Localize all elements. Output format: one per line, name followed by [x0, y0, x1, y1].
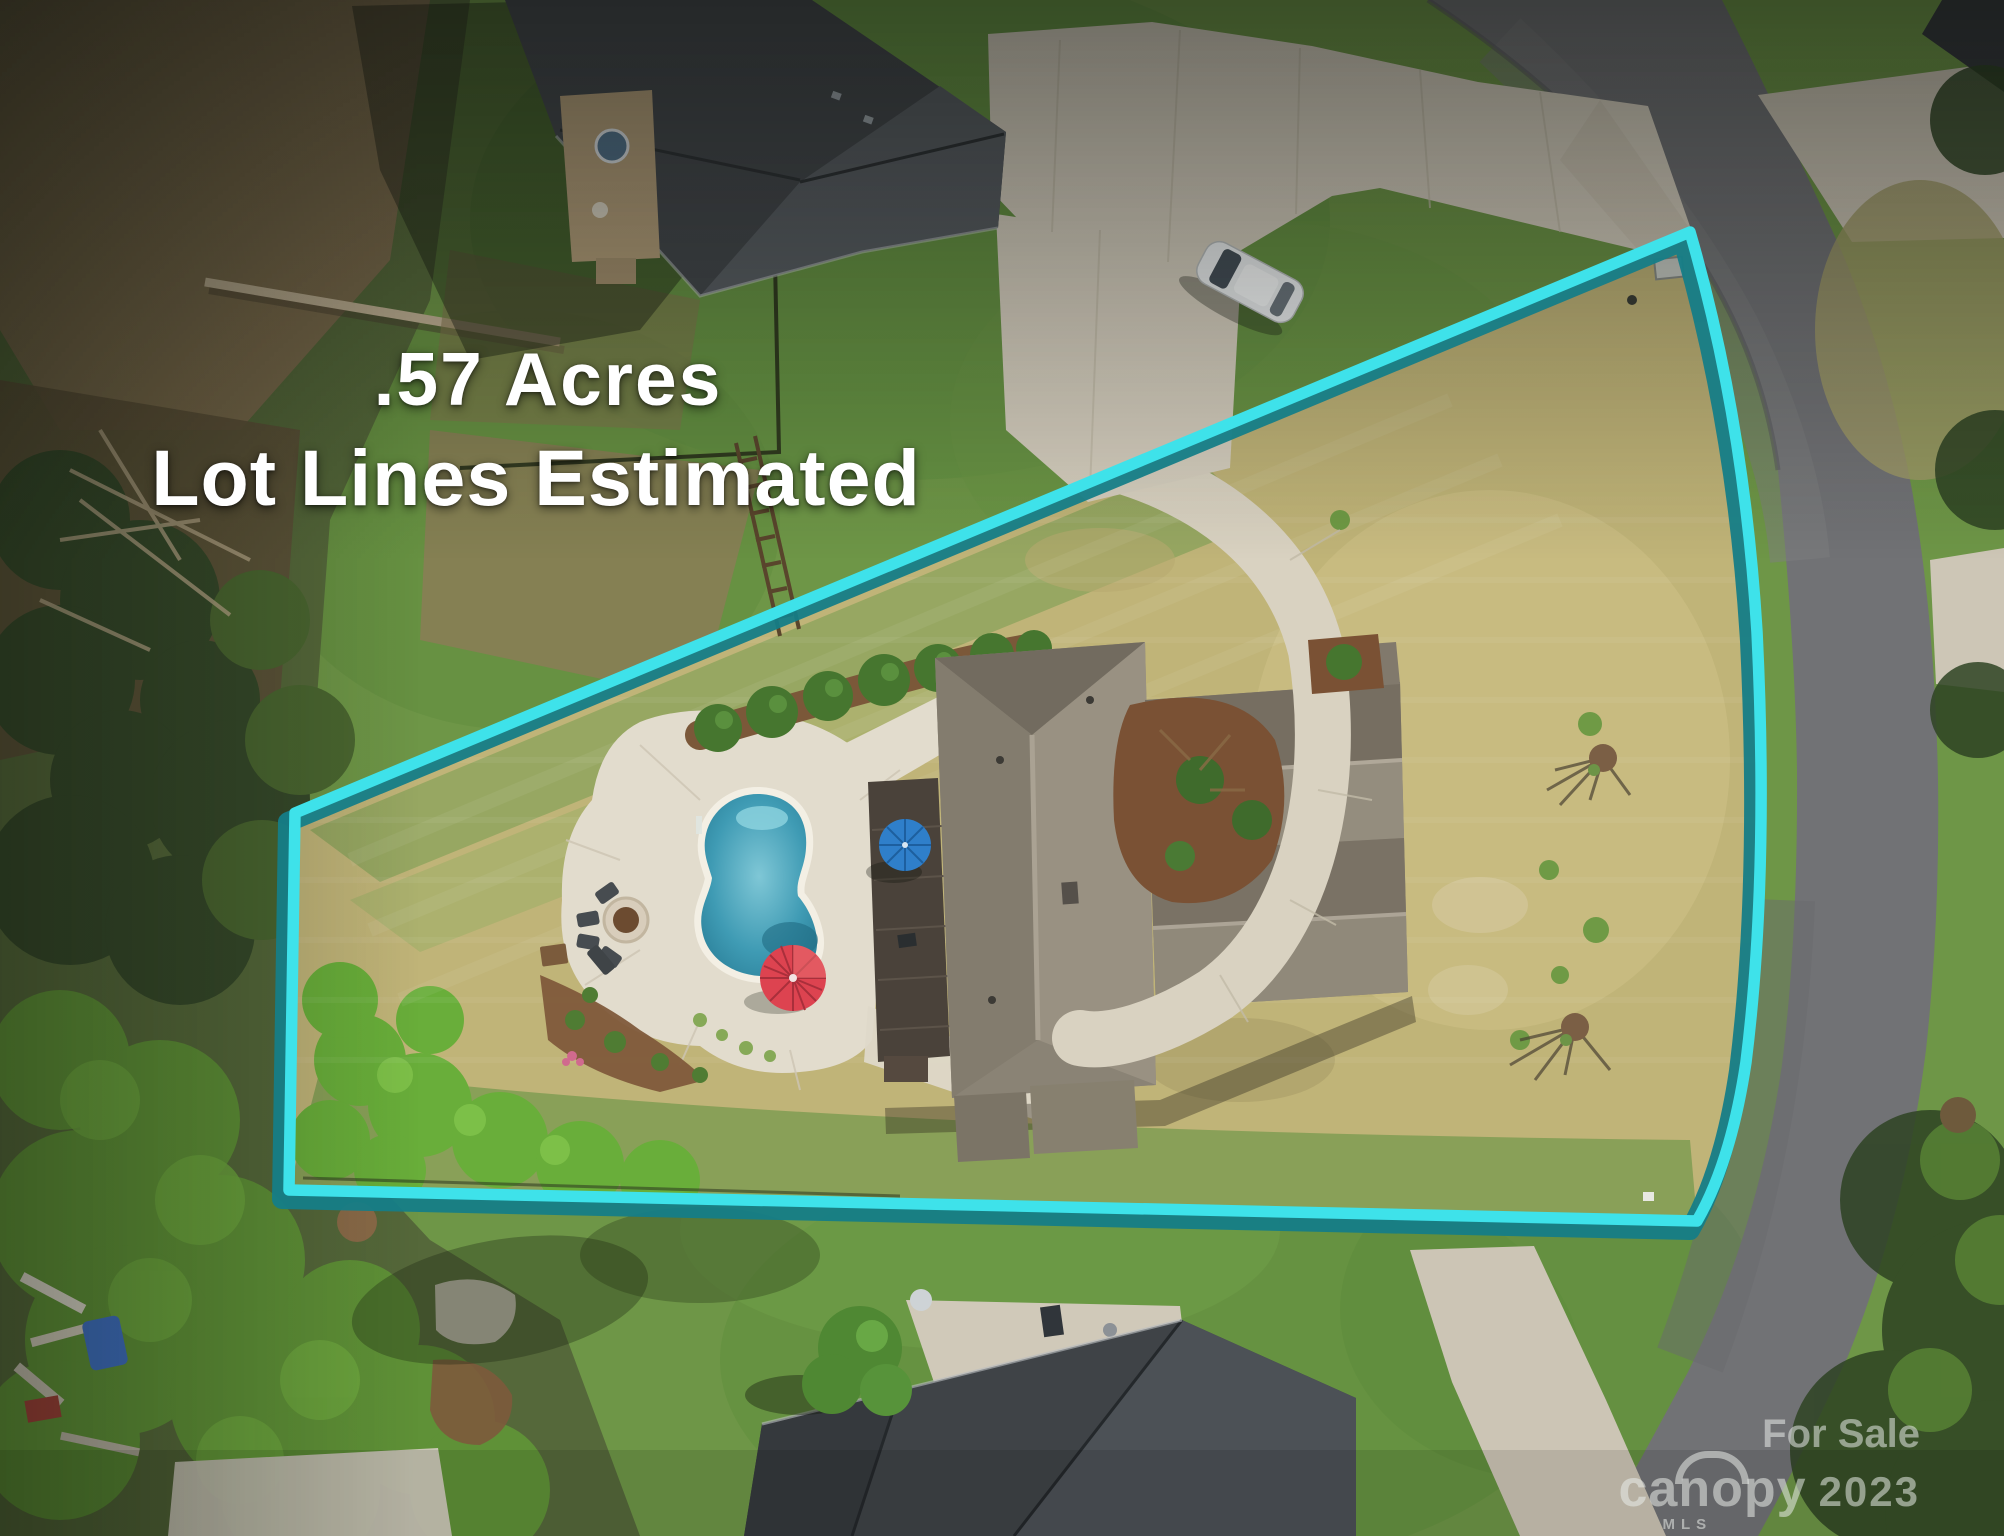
corner-bed — [1308, 634, 1384, 694]
yard-marker — [1643, 1192, 1654, 1201]
left-shade-overlay — [0, 0, 420, 1536]
satellite-dish — [910, 1289, 932, 1311]
deck-stairs — [884, 1056, 928, 1082]
canopy-mls-logo: canopy MLS 2023 — [1619, 1463, 1921, 1515]
wood-box — [540, 943, 569, 966]
mulch-island — [1113, 698, 1284, 903]
canopy-logo-arch-icon — [1675, 1451, 1749, 1484]
pool-ladder — [696, 816, 702, 834]
watermark: For Sale canopy MLS 2023 — [1619, 1414, 1921, 1515]
chimney — [1061, 881, 1078, 904]
lot-lines-disclaimer-label: Lot Lines Estimated — [151, 438, 921, 517]
pool-steps — [736, 806, 788, 830]
small-tree-right — [1940, 1097, 1976, 1133]
grill — [897, 933, 917, 948]
canopy-mls-label: MLS — [1663, 1517, 1713, 1532]
acreage-label: .57 Acres — [374, 342, 723, 417]
grill-bottom — [1040, 1305, 1064, 1337]
aerial-listing-photo: .57 Acres Lot Lines Estimated For Sale c… — [0, 0, 2004, 1536]
watermark-year: 2023 — [1819, 1471, 1920, 1513]
for-sale-label: For Sale — [1619, 1414, 1921, 1454]
aerial-scene — [0, 0, 2004, 1536]
